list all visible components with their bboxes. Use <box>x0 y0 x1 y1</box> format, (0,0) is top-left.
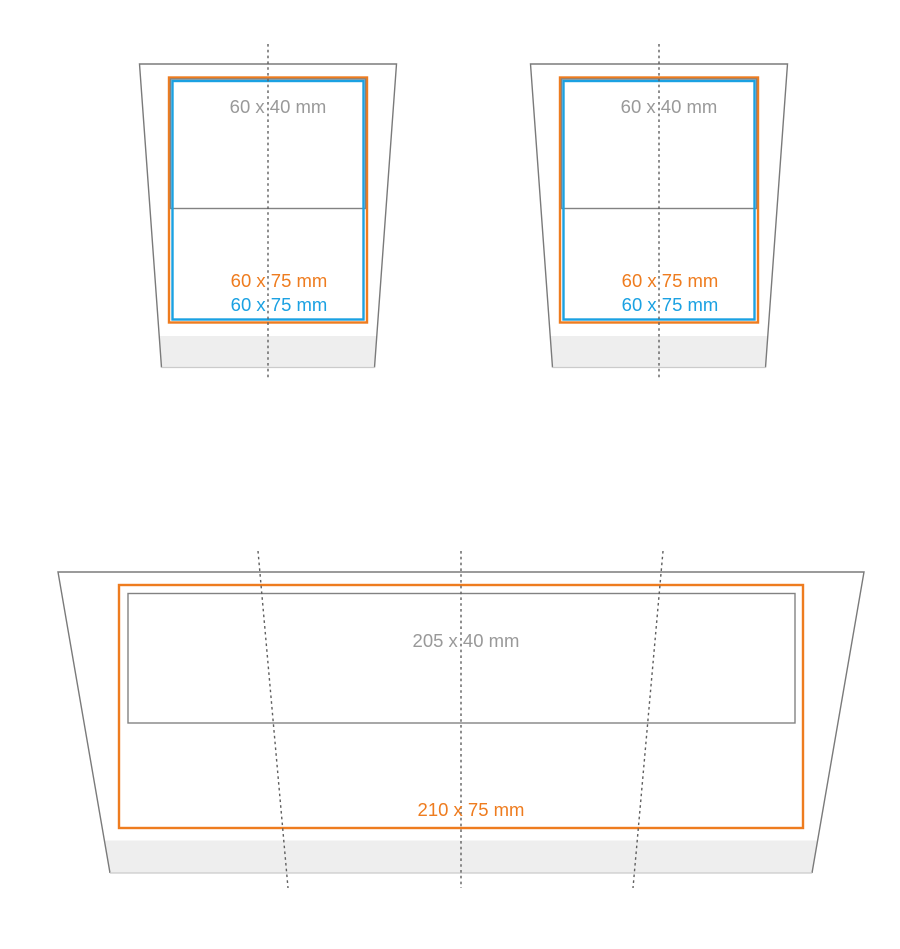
wrap-max-area-label: 210 x 75 mm <box>418 799 525 820</box>
wrap-left-seam-dashed-line <box>258 551 288 888</box>
cup-right-print-zone-label: 60 x 40 mm <box>621 96 718 117</box>
wrap-figure: 205 x 40 mm 210 x 75 mm <box>58 551 864 888</box>
print-area-diagram: 60 x 40 mm 60 x 75 mm 60 x 75 mm 60 x 40… <box>0 0 900 949</box>
cup-right-figure: 60 x 40 mm 60 x 75 mm 60 x 75 mm <box>531 44 788 378</box>
cup-right-max-area-label: 60 x 75 mm <box>622 270 719 291</box>
cup-left-figure: 60 x 40 mm 60 x 75 mm 60 x 75 mm <box>140 44 397 378</box>
wrap-print-zone-label: 205 x 40 mm <box>413 630 520 651</box>
wrap-base-strip <box>105 841 818 873</box>
diagram-canvas: 60 x 40 mm 60 x 75 mm 60 x 75 mm 60 x 40… <box>0 0 900 949</box>
cup-right-imprint-area-label: 60 x 75 mm <box>622 294 719 315</box>
cup-left-print-zone-label: 60 x 40 mm <box>230 96 327 117</box>
cup-left-max-area-label: 60 x 75 mm <box>231 270 328 291</box>
cup-left-imprint-area-label: 60 x 75 mm <box>231 294 328 315</box>
wrap-right-seam-dashed-line <box>633 551 663 888</box>
